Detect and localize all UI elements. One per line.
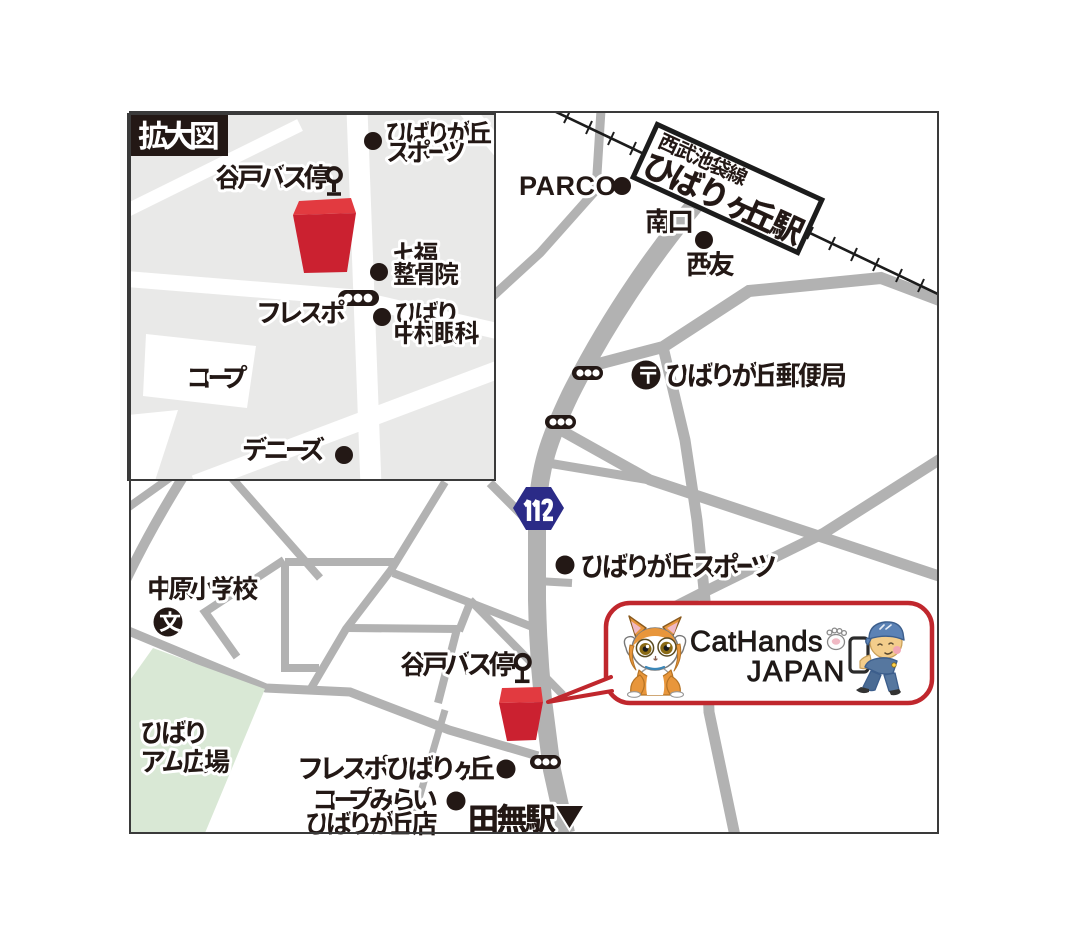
svg-text:PARCO: PARCO [519,171,617,201]
svg-text:JAPAN: JAPAN [747,656,846,688]
svg-text:CatHands: CatHands [690,626,823,658]
